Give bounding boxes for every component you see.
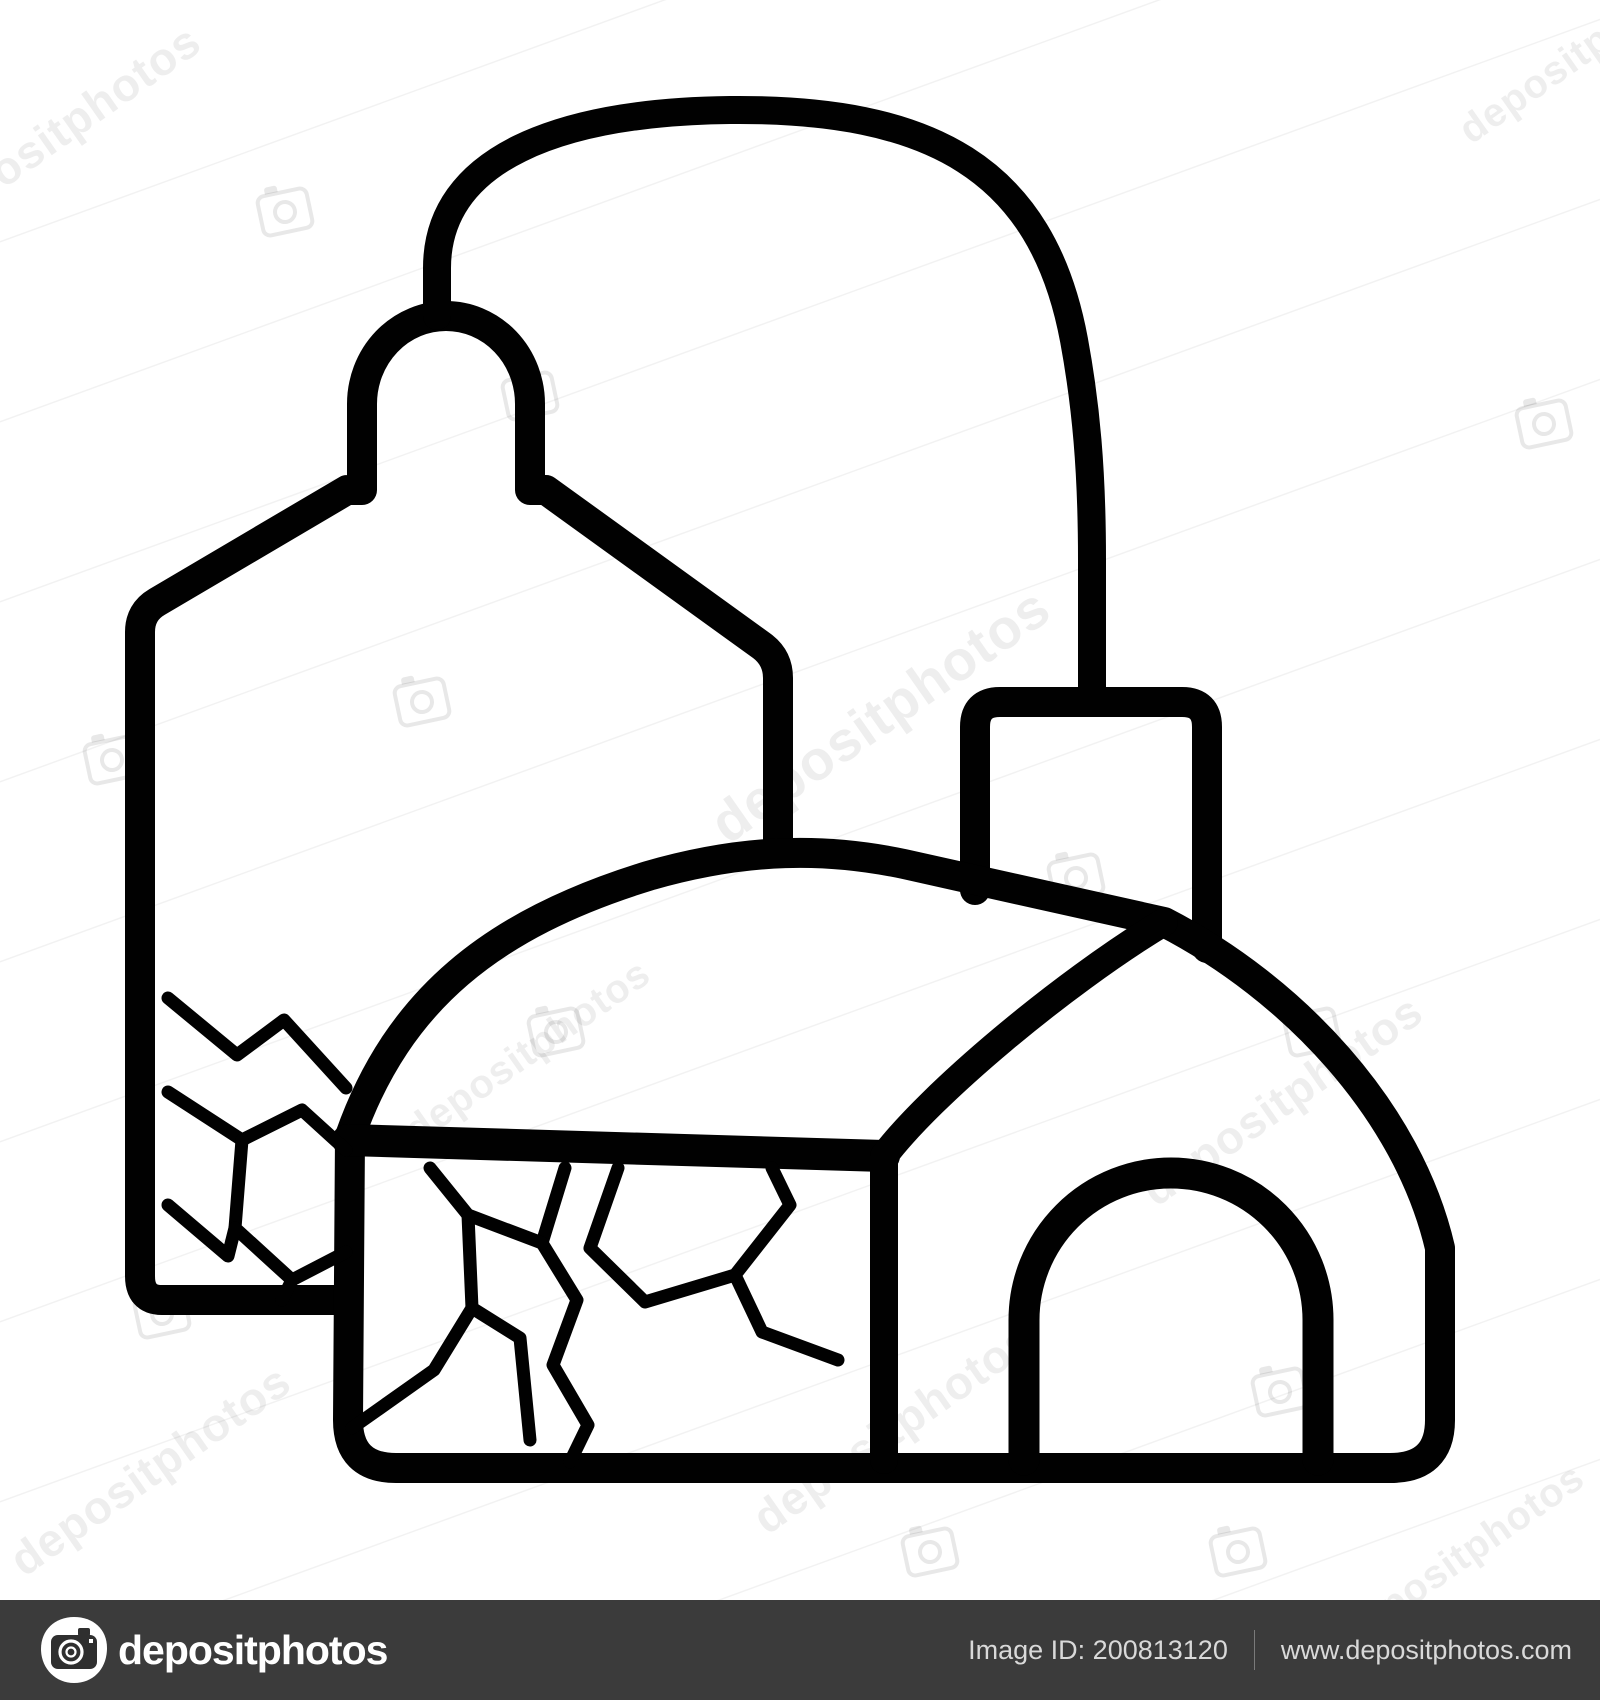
kiln-oven-icon [0,0,1600,1600]
kiln-stone-cracks [168,998,346,1300]
footer-meta: Image ID: 200813120 www.depositphotos.co… [968,1630,1572,1670]
website-text: www.depositphotos.com [1281,1635,1572,1666]
stock-image-preview-page: depositphotosdepositphotosdepositphotosd… [0,0,1600,1700]
artwork-area: depositphotosdepositphotosdepositphotosd… [0,0,1600,1600]
arched-door [1024,1173,1318,1460]
oven-roof-band [348,1140,884,1156]
footer-bar: depositphotos Image ID: 200813120 www.de… [0,1600,1600,1700]
footer-divider [1254,1630,1255,1670]
camera-logo-icon [38,1614,110,1686]
watermark-lines [0,0,1600,1600]
oven-stone-cracks [352,1168,838,1462]
depositphotos-logo: depositphotos [38,1614,387,1686]
brand-name: depositphotos [118,1627,387,1674]
image-id-text: Image ID: 200813120 [968,1635,1228,1666]
